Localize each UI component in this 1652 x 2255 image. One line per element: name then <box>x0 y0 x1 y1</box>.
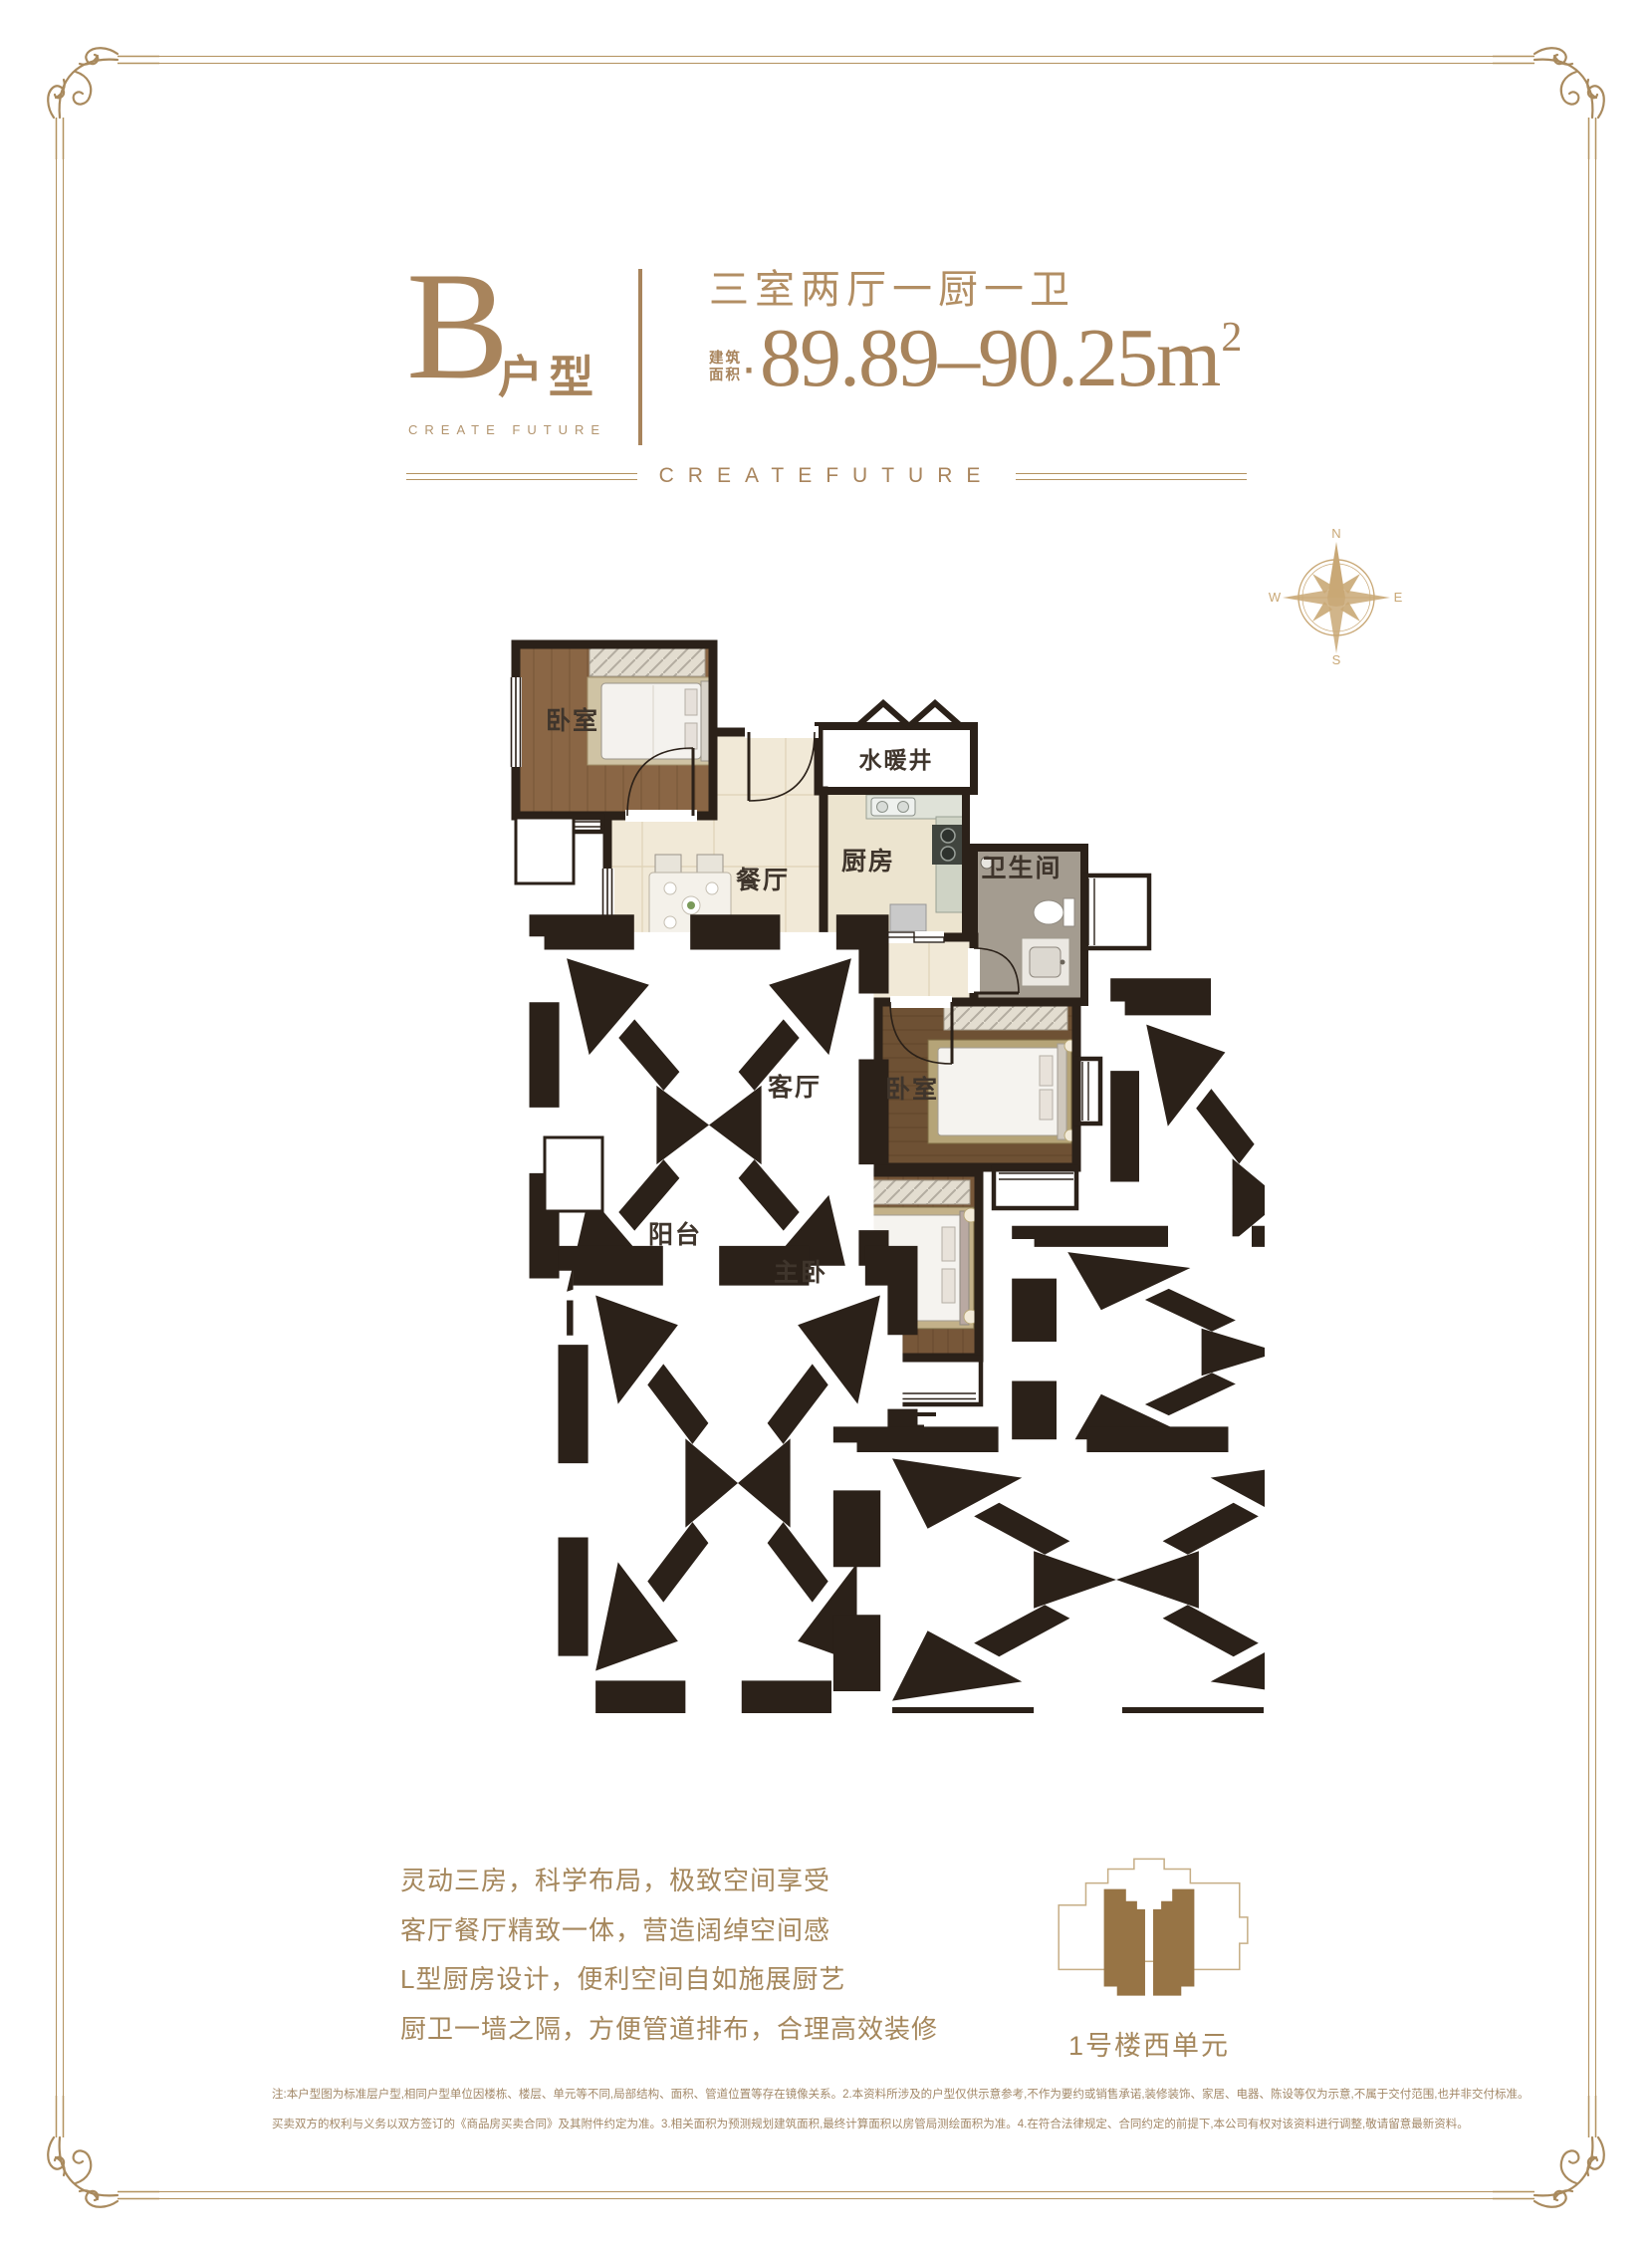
feature-line: 客厅餐厅精致一体，营造阔绰空间感 <box>400 1906 938 1956</box>
corner-flourish-icon <box>40 2096 159 2215</box>
compass-west-label: W <box>1269 590 1282 605</box>
area-superscript: 2 <box>1221 317 1242 359</box>
area-label-top: 建筑 <box>709 351 742 368</box>
area-value: 89.89–90.25m <box>760 321 1219 396</box>
room-label-bedroom-right: 卧室 <box>885 1075 939 1104</box>
band-divider: CREATEFUTURE <box>406 460 1247 492</box>
feature-list: 灵动三房，科学布局，极致空间享受 客厅餐厅精致一体，营造阔绰空间感 L型厨房设计… <box>400 1857 938 2054</box>
room-label-balcony: 阳台 <box>648 1220 702 1249</box>
bedroom-right-furniture <box>928 1006 1076 1143</box>
floorplan: 卧室 水暖井 餐厅 厨房 卫生间 客厅 卧室 阳台 主卧 <box>468 618 1265 1713</box>
disclaimer-line-2: 买卖双方的权利与义务以双方签订的《商品房买卖合同》及其附件约定为准。3.相关面积… <box>272 2110 1606 2139</box>
location-key-diagram <box>1034 1843 1265 2014</box>
tagline: CREATE FUTURE <box>408 422 606 437</box>
band-line-right <box>1016 473 1247 480</box>
band-line-left <box>406 473 637 480</box>
compass-icon: N S W E <box>1267 526 1406 665</box>
room-label-utility-shaft: 水暖井 <box>859 747 934 773</box>
room-label-kitchen: 厨房 <box>841 847 895 876</box>
highlighted-unit-right <box>1153 1889 1194 1996</box>
rooms-title: 三室两厅一厨一卫 <box>709 257 1075 315</box>
area-dot: · <box>744 353 756 388</box>
room-label-bedroom-top: 卧室 <box>546 706 599 735</box>
room-label-dining: 餐厅 <box>736 867 790 894</box>
compass-south-label: S <box>1332 652 1341 665</box>
feature-line: 厨卫一墙之隔，方便管道排布，合理高效装修 <box>400 2005 938 2055</box>
unit-type-letter: B <box>406 249 509 403</box>
area-label-bottom: 面积 <box>709 368 742 384</box>
highlighted-unit-left <box>1104 1889 1145 1996</box>
compass-north-label: N <box>1331 526 1340 541</box>
feature-line: L型厨房设计，便利空间自如施展厨艺 <box>400 1955 938 2005</box>
disclaimer: 注:本户型图为标准层户型,相同户型单位因楼栋、楼层、单元等不同,局部结构、面积、… <box>272 2080 1606 2139</box>
header-divider <box>638 269 642 445</box>
room-label-living: 客厅 <box>768 1073 822 1102</box>
compass-east-label: E <box>1394 590 1403 605</box>
unit-type-suffix: 户型 <box>498 341 599 405</box>
corner-flourish-icon <box>1493 40 1612 159</box>
poster-page: B 户型 CREATE FUTURE 三室两厅一厨一卫 建筑 面积 · 89.8… <box>0 0 1652 2255</box>
area-row: 建筑 面积 · 89.89–90.25m 2 <box>709 317 1242 396</box>
disclaimer-line-1: 注:本户型图为标准层户型,相同户型单位因楼栋、楼层、单元等不同,局部结构、面积、… <box>272 2080 1606 2110</box>
bedroom-top-furniture <box>588 648 715 765</box>
area-label: 建筑 面积 <box>709 351 742 384</box>
feature-line: 灵动三房，科学布局，极致空间享受 <box>400 1857 938 1906</box>
band-text: CREATEFUTURE <box>659 464 995 488</box>
room-label-master-bedroom: 主卧 <box>774 1259 827 1287</box>
corner-flourish-icon <box>40 40 159 159</box>
location-key-label: 1号楼西单元 <box>1034 2024 1265 2063</box>
room-label-bathroom: 卫生间 <box>981 855 1062 882</box>
